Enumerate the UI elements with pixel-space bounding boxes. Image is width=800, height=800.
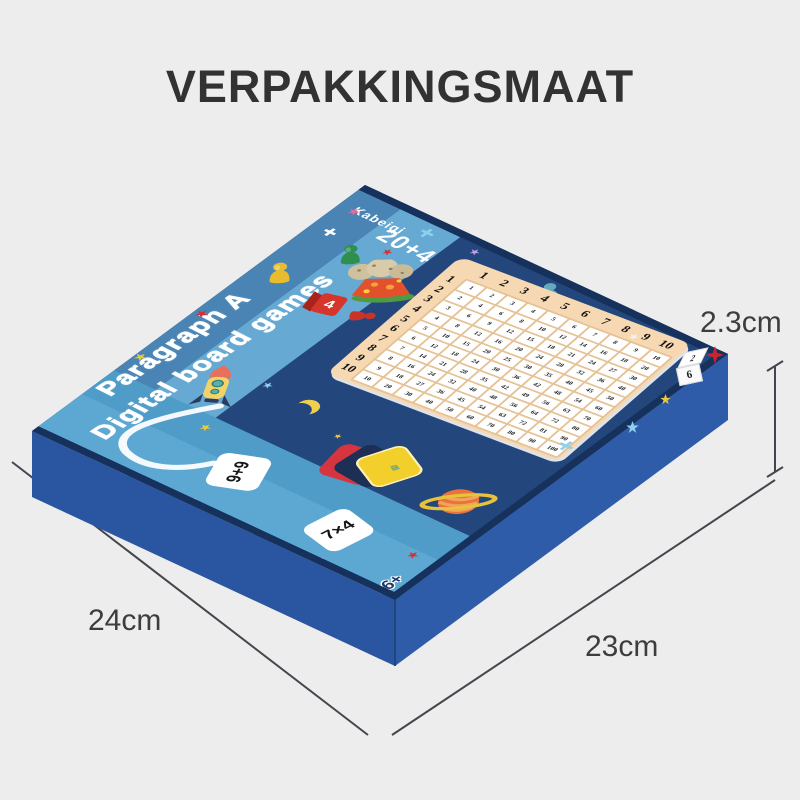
moon-icon (285, 402, 314, 418)
saturn-icon (413, 479, 505, 524)
width-dimension-label: 24cm (88, 604, 161, 638)
white-die: 2 6 (673, 350, 703, 386)
flash-card-1: 9+9 (203, 452, 274, 492)
star-icon (197, 422, 214, 432)
star-icon (332, 433, 344, 440)
pawn-yellow-icon (265, 261, 295, 287)
depth-dimension-label: 23cm (585, 630, 658, 664)
sparkle-icon (321, 227, 340, 238)
pawn-red-icon (344, 309, 378, 322)
packaging-size-figure: VERPAKKINGSMAAT Kabeiqi 20+4 Paragraph A… (0, 0, 800, 800)
star-icon (467, 247, 482, 256)
flash-card-2: 7×4 (300, 506, 378, 553)
height-dimension-label: 2.3cm (700, 306, 782, 340)
sparkle-icon (417, 227, 438, 239)
star-icon (404, 550, 421, 560)
star-icon (186, 496, 200, 504)
star-icon (260, 381, 275, 390)
pawn-green-icon (337, 244, 365, 269)
